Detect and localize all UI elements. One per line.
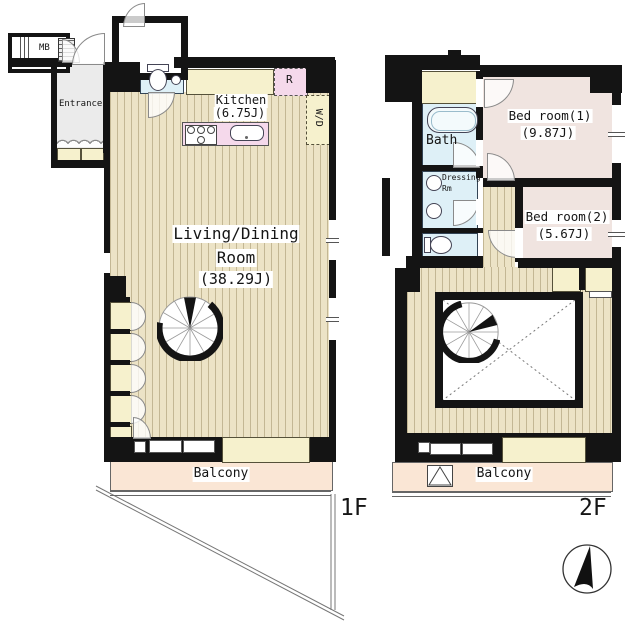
low-window xyxy=(418,442,430,453)
door-arc-porch xyxy=(123,3,145,27)
basin-icon xyxy=(426,203,442,219)
wall xyxy=(398,55,480,70)
wall xyxy=(518,258,613,268)
sink-icon xyxy=(230,125,264,141)
wall xyxy=(382,178,390,256)
terrace-step xyxy=(222,437,310,463)
kitchen-counter-top xyxy=(186,69,274,95)
meter-box-label: MB xyxy=(38,43,51,53)
door-opening xyxy=(476,79,483,107)
wall xyxy=(104,329,130,334)
burner-icon xyxy=(197,136,205,144)
closet-2f-top xyxy=(418,71,478,104)
low-window xyxy=(149,440,182,453)
wall xyxy=(579,267,585,290)
wall xyxy=(104,422,130,427)
wall xyxy=(412,228,483,233)
wall xyxy=(448,50,461,56)
basin-icon xyxy=(426,175,442,191)
balcony-edge-line xyxy=(110,491,331,496)
bedroom1-label: Bed room(1) xyxy=(508,109,593,123)
door-opening xyxy=(515,228,523,258)
living-dining-label: Living/Dining xyxy=(172,225,299,243)
window-tick xyxy=(608,232,625,237)
bedroom1-area-label: (9.87J) xyxy=(521,126,576,140)
low-window xyxy=(462,443,493,455)
wall xyxy=(104,297,130,302)
low-window xyxy=(430,443,461,455)
spiral-staircase-1f xyxy=(157,295,223,361)
floor-2-label: 2F xyxy=(578,495,608,521)
washlet-icon xyxy=(171,75,181,85)
window-tick xyxy=(608,132,625,137)
faucet-dot xyxy=(245,136,248,139)
shelf xyxy=(589,291,612,298)
low-window xyxy=(183,440,215,453)
compass-north-icon xyxy=(561,543,613,595)
wall xyxy=(306,60,336,93)
washer-dryer-label: W/D xyxy=(312,108,324,128)
burner-icon xyxy=(197,126,205,134)
closet xyxy=(110,395,132,424)
wall xyxy=(51,63,57,168)
closet xyxy=(110,302,132,331)
closet xyxy=(110,333,132,362)
bathtub-icon xyxy=(427,107,478,133)
stove-icon xyxy=(185,125,217,145)
floorplan-canvas: MB Entrance Kitchen (6.75J) R W/D Living… xyxy=(0,0,640,627)
terrace-step-2f xyxy=(502,437,586,463)
low-window xyxy=(134,441,146,453)
door-arc-entrance xyxy=(72,33,105,65)
toilet-bowl-2f xyxy=(430,236,452,254)
bedroom2-label: Bed room(2) xyxy=(525,210,610,224)
spiral-staircase-2f xyxy=(438,301,500,363)
refrigerator-label: R xyxy=(285,74,294,87)
window-tick xyxy=(326,317,339,322)
closet-bedroom2b xyxy=(585,267,613,292)
toilet-bowl-icon xyxy=(149,69,167,91)
escape-hatch-icon xyxy=(427,465,453,487)
bedroom2-area-label: (5.67J) xyxy=(537,227,592,241)
floor-1-label: 1F xyxy=(339,495,369,521)
dressing-label2: Rm xyxy=(441,184,453,193)
balcony-1f-label: Balcony xyxy=(193,467,250,482)
living-dining-area-label: (38.29J) xyxy=(199,271,273,288)
living-dining-label2: Room xyxy=(216,249,257,267)
wall xyxy=(51,160,110,168)
property-boundary-lines xyxy=(92,484,354,626)
closet xyxy=(110,364,132,393)
burner-icon xyxy=(207,126,215,134)
closet-bedroom2 xyxy=(552,267,581,292)
entrance-label: Entrance xyxy=(58,99,103,109)
shoe-closet-doors xyxy=(57,131,103,147)
bathtub-inner xyxy=(431,111,476,131)
window-tick xyxy=(326,238,339,243)
wall xyxy=(104,391,130,396)
bath-label: Bath xyxy=(425,134,458,149)
wall xyxy=(329,93,336,438)
burner-icon xyxy=(187,126,195,134)
balcony-2f-label: Balcony xyxy=(476,467,533,482)
kitchen-area-label: (6.75J) xyxy=(214,107,267,121)
door-opening xyxy=(476,199,483,225)
wall xyxy=(406,256,483,268)
door-opening xyxy=(476,140,483,166)
dressing-label: Dressing xyxy=(441,173,482,182)
wall xyxy=(104,360,130,365)
window xyxy=(104,253,110,273)
